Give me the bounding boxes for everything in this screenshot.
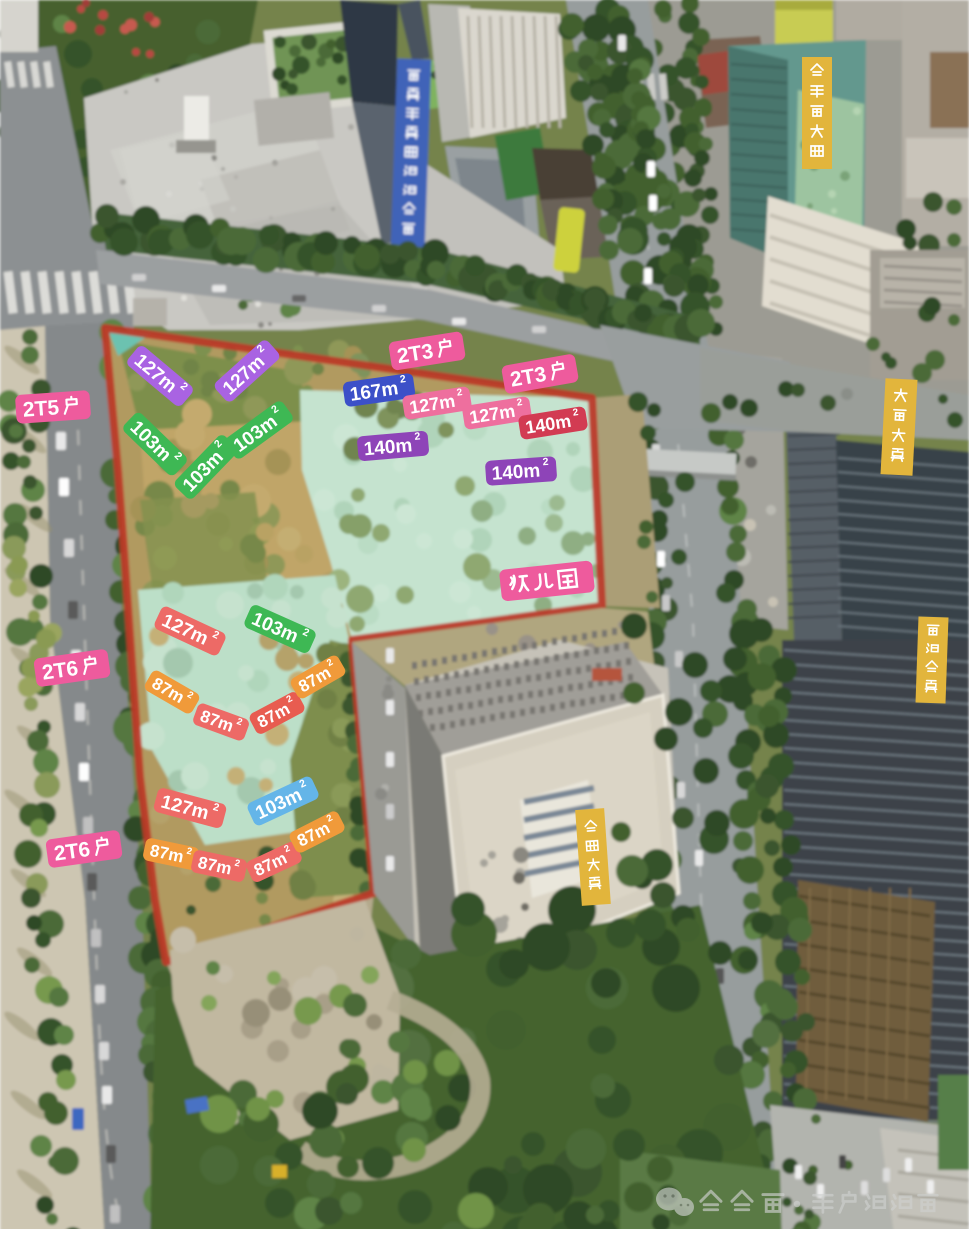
svg-text:140m: 140m xyxy=(363,435,413,460)
svg-text:2: 2 xyxy=(414,430,421,442)
svg-text:140m: 140m xyxy=(491,460,541,484)
svg-text:2T5: 2T5 xyxy=(22,396,60,421)
svg-text:2: 2 xyxy=(542,456,549,468)
